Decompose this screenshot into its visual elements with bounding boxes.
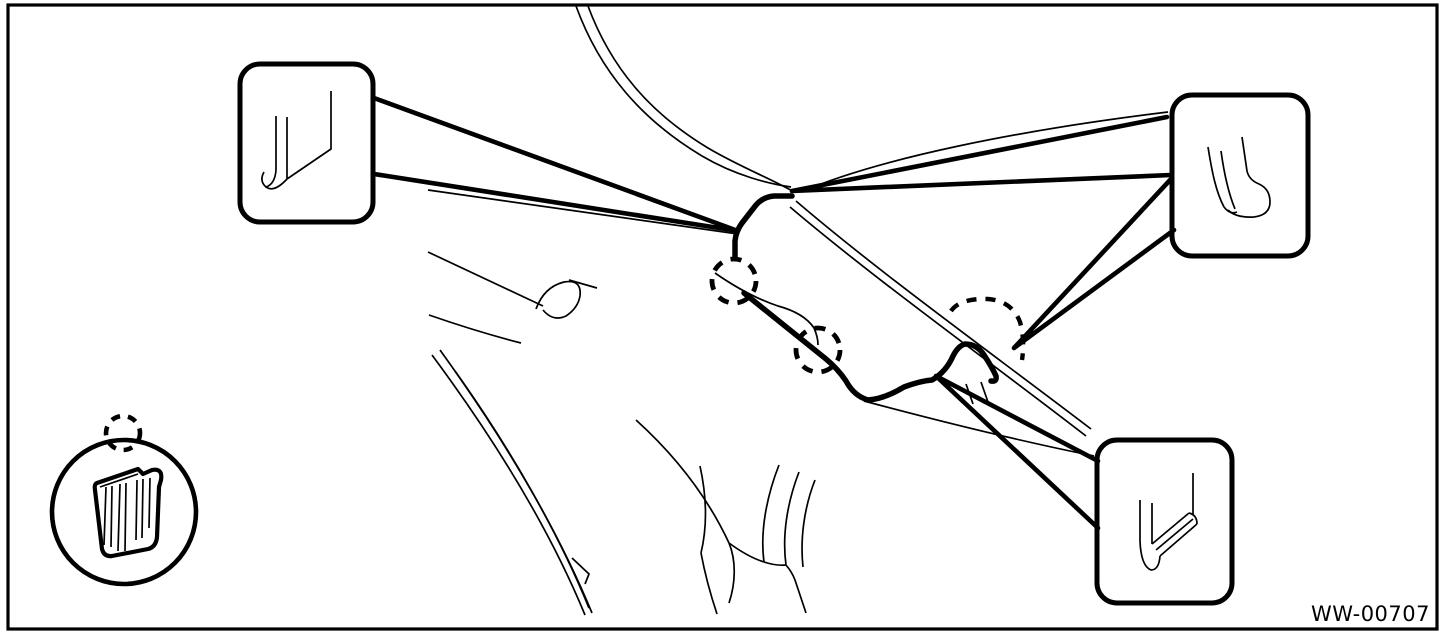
hose-end-straight-icon [262, 91, 331, 189]
figure-code-label: WW-00707 [1311, 602, 1430, 626]
legend-circle [52, 440, 196, 584]
legend-clip-detail [52, 416, 196, 584]
dashed-circle-clip-marker [106, 416, 140, 450]
diagram-svg [0, 0, 1456, 638]
hose-routing-clip-icon [95, 469, 162, 556]
callout-box-top-right [1172, 95, 1308, 256]
pointer-top-right-b [1014, 179, 1174, 348]
body-panel-lines [428, 6, 1168, 615]
pointer-top-right-a [792, 117, 1171, 191]
figure-canvas: WW-00707 [0, 0, 1456, 638]
hose-end-elbow-icon [1208, 137, 1270, 217]
hose-end-nozzle-icon [1140, 473, 1197, 570]
callout-pointers [374, 98, 1174, 528]
washer-hose-path [735, 196, 996, 400]
callout-box-top-left [240, 64, 373, 222]
figure-border-frame [8, 5, 1437, 629]
callout-box-bottom-right [1097, 440, 1232, 603]
pointer-top-left [374, 98, 738, 231]
